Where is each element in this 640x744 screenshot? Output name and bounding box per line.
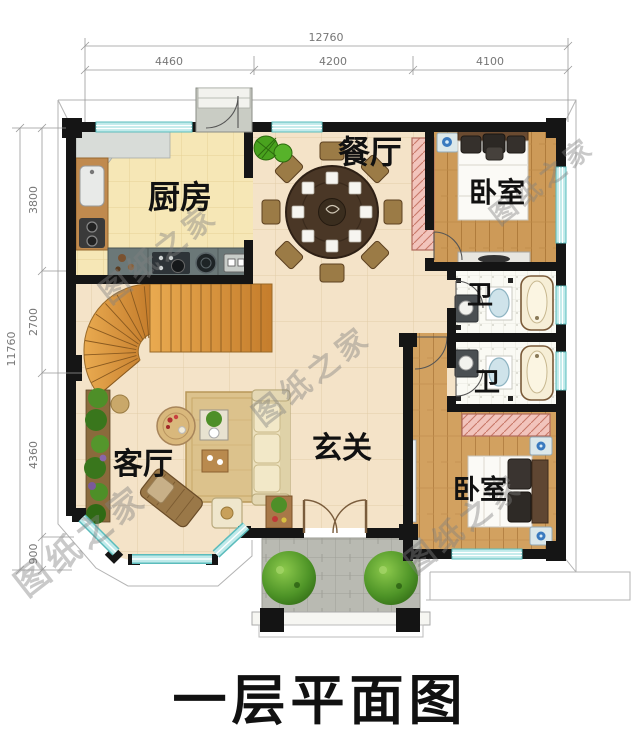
label-bedroom-bottom: 卧室 xyxy=(453,474,507,506)
porch-bush-left xyxy=(262,551,316,605)
dim-left-seg-2: 2700 xyxy=(27,308,40,336)
dim-top-seg-3: 4100 xyxy=(476,55,504,68)
floor-plan-drawing: 图纸之家 图纸之家 图纸之家 图纸之家 图纸之家 厨房 餐厅 卧室 卫 卫 客厅… xyxy=(0,0,640,744)
dim-top-total: 12760 xyxy=(309,31,344,44)
label-bath-top: 卫 xyxy=(467,281,493,311)
foyer-side-cabinet xyxy=(266,496,292,528)
page-title: 一层平面图 xyxy=(0,656,640,735)
dining-window xyxy=(272,122,322,132)
bath-bottom-window xyxy=(556,352,566,390)
label-foyer: 玄关 xyxy=(312,431,372,466)
label-bedroom-top: 卧室 xyxy=(469,176,525,209)
bedroom-bottom-window xyxy=(452,549,522,559)
dim-left-seg-1: 3800 xyxy=(27,186,40,214)
porch-pillar-right xyxy=(396,608,420,632)
dim-left-seg-3: 4360 xyxy=(27,441,40,469)
label-bath-bottom: 卫 xyxy=(474,368,500,398)
dim-top-seg-1: 4460 xyxy=(155,55,183,68)
bath-top-window xyxy=(556,286,566,324)
floor-plan-page: 图纸之家 图纸之家 图纸之家 图纸之家 图纸之家 厨房 餐厅 卧室 卫 卫 客厅… xyxy=(0,0,640,744)
dim-left-total: 11760 xyxy=(5,332,18,367)
label-kitchen: 厨房 xyxy=(148,178,212,216)
dim-left-seg-4: 900 xyxy=(27,544,40,565)
wardrobe-bottom xyxy=(462,414,550,436)
label-living: 客厅 xyxy=(113,447,173,482)
porch-pillar-left xyxy=(260,608,284,632)
kitchen-window xyxy=(96,122,192,132)
back-entry xyxy=(196,88,252,132)
label-dining: 餐厅 xyxy=(338,133,402,171)
dim-top-seg-2: 4200 xyxy=(319,55,347,68)
